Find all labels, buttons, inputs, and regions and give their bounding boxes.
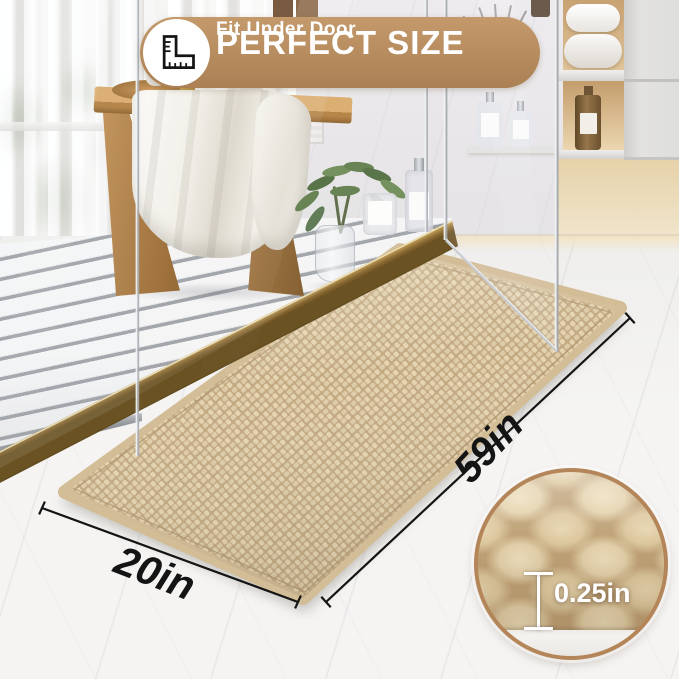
badge-text: PERFECT SIZE Fit Under Door	[216, 17, 534, 88]
ruler-square-icon	[155, 31, 199, 75]
product-image: 20in 59in PERFECT SIZE Fit Under Door	[0, 0, 679, 679]
glass-frame-edge	[137, 0, 139, 456]
thickness-inset: 0.25in	[474, 468, 668, 660]
badge-subtitle: Fit Under Door	[216, 19, 356, 41]
badge-icon-circle	[143, 19, 210, 86]
inset-lighting	[478, 472, 668, 660]
size-badge: PERFECT SIZE Fit Under Door	[140, 17, 540, 88]
glass-frame-edge	[136, 0, 138, 456]
glass-frame-edge	[557, 0, 559, 352]
thickness-measure-cap	[524, 572, 553, 575]
thickness-label: 0.25in	[554, 578, 631, 609]
thickness-measure-line	[537, 574, 540, 630]
glass-frame-edge	[555, 0, 557, 352]
thickness-measure-cap	[524, 627, 553, 630]
